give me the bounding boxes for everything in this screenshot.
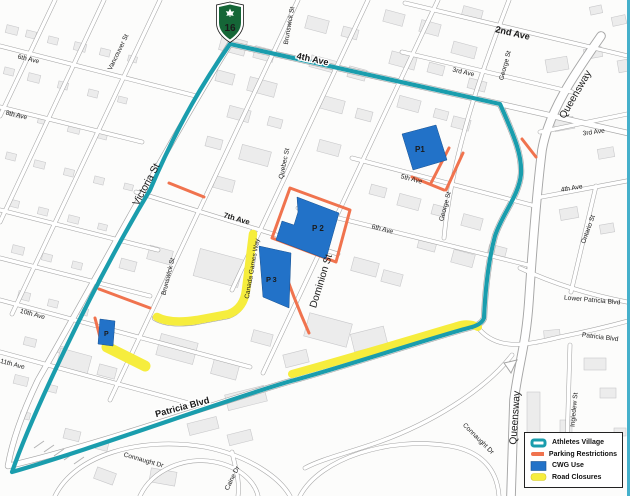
building-footprint <box>37 207 48 216</box>
building-footprint <box>304 313 353 348</box>
building-footprint <box>47 299 58 308</box>
legend-label-athletes-village: Athletes Village <box>552 439 604 446</box>
street-label-dominion: Dominion St <box>308 253 335 309</box>
street-label-patricia-e: Patricia Blvd <box>582 332 620 343</box>
building-footprint <box>97 223 107 231</box>
building-footprint <box>67 215 79 224</box>
building-footprint <box>589 5 602 15</box>
building-footprint <box>23 337 37 348</box>
building-footprint <box>599 223 614 234</box>
building-footprint <box>33 160 45 169</box>
building-footprint <box>545 56 569 73</box>
legend-label-parking-restrictions: Parking Restrictions <box>549 451 617 458</box>
building-footprint <box>559 207 579 221</box>
road-closures-swatch-icon <box>530 472 547 482</box>
building-footprint <box>63 168 74 177</box>
building-footprint <box>123 183 133 191</box>
building-footprint <box>369 184 387 198</box>
legend: Athletes Village Parking Restrictions CW… <box>524 432 623 488</box>
restriction-george <box>522 139 536 157</box>
building-footprint <box>187 417 219 436</box>
building-footprint <box>227 429 253 445</box>
building-footprint <box>283 349 309 367</box>
building-footprint <box>47 36 58 45</box>
building-footprint <box>119 258 137 272</box>
building-footprint <box>267 116 283 128</box>
building-footprint <box>317 139 341 156</box>
street-label-connaught-1: Connaught Dr <box>123 452 165 470</box>
athletes-village-swatch-icon <box>530 438 547 448</box>
street-label-6th-ave: 6th Ave <box>371 224 394 236</box>
building-footprint <box>597 147 614 160</box>
street-label-ontario: Ontario St <box>580 214 597 244</box>
road-closure-map: P1 P2 P3 P 2nd Ave 3rd Ave 3rd Ave 4th A… <box>0 0 630 496</box>
building-footprint <box>41 253 52 262</box>
highway-shield-number: 16 <box>224 23 236 34</box>
building-footprint <box>27 73 41 84</box>
building-footprint <box>383 10 405 27</box>
building-footprint <box>461 214 483 231</box>
legend-label-road-closures: Road Closures <box>552 474 601 481</box>
building-footprint <box>239 144 272 166</box>
lot-label-p: P <box>104 331 109 338</box>
lot-label-p1: P1 <box>415 145 425 154</box>
building-footprint <box>215 70 235 85</box>
building-footprint <box>5 152 16 161</box>
street-label-ingledew: Ingledew St <box>570 392 580 427</box>
building-footprint <box>305 15 330 33</box>
building-footprint <box>251 330 273 347</box>
legend-item-athletes-village: Athletes Village <box>530 437 617 448</box>
building-footprint <box>584 358 606 370</box>
building-footprint <box>351 257 380 277</box>
building-footprint <box>94 467 117 485</box>
legend-item-cwg-use: CWG Use <box>530 460 617 471</box>
street-label-3rd-ave-e: 3rd Ave <box>582 127 605 137</box>
building-footprint <box>381 270 403 287</box>
building-footprint <box>397 193 421 210</box>
legend-label-cwg-use: CWG Use <box>552 462 584 469</box>
parking-restrictions-swatch-icon <box>530 449 544 459</box>
building-footprint <box>3 67 14 76</box>
cwg-use-swatch-icon <box>530 461 547 471</box>
building-footprint <box>117 96 127 104</box>
building-footprint <box>433 108 449 120</box>
map-canvas: P1 P2 P3 P 2nd Ave 3rd Ave 3rd Ave 4th A… <box>0 0 630 496</box>
highway-16-shield-icon: 16 <box>217 2 244 43</box>
building-footprint <box>355 108 373 122</box>
lot-label-p2: P2 <box>312 224 326 233</box>
lot-label-p3: P3 <box>266 275 278 284</box>
restriction-victoria <box>169 183 204 197</box>
street-label-lower-patricia: Lower Patricia Blvd <box>564 295 621 307</box>
building-footprint <box>451 41 477 59</box>
building-footprint <box>397 95 421 112</box>
building-footprint <box>600 388 616 398</box>
building-footprint <box>5 25 19 36</box>
building-footprint <box>205 136 223 150</box>
building-footprint <box>63 428 81 442</box>
building-footprint <box>427 62 445 76</box>
building-footprint <box>11 245 25 256</box>
building-footprint <box>71 261 82 270</box>
building-footprint <box>13 374 29 386</box>
building-footprint <box>93 176 104 185</box>
legend-item-parking-restrictions: Parking Restrictions <box>530 449 617 460</box>
building-footprint <box>611 15 627 27</box>
building-footprint <box>99 48 110 57</box>
legend-item-road-closures: Road Closures <box>530 472 617 483</box>
building-footprint <box>87 89 98 98</box>
